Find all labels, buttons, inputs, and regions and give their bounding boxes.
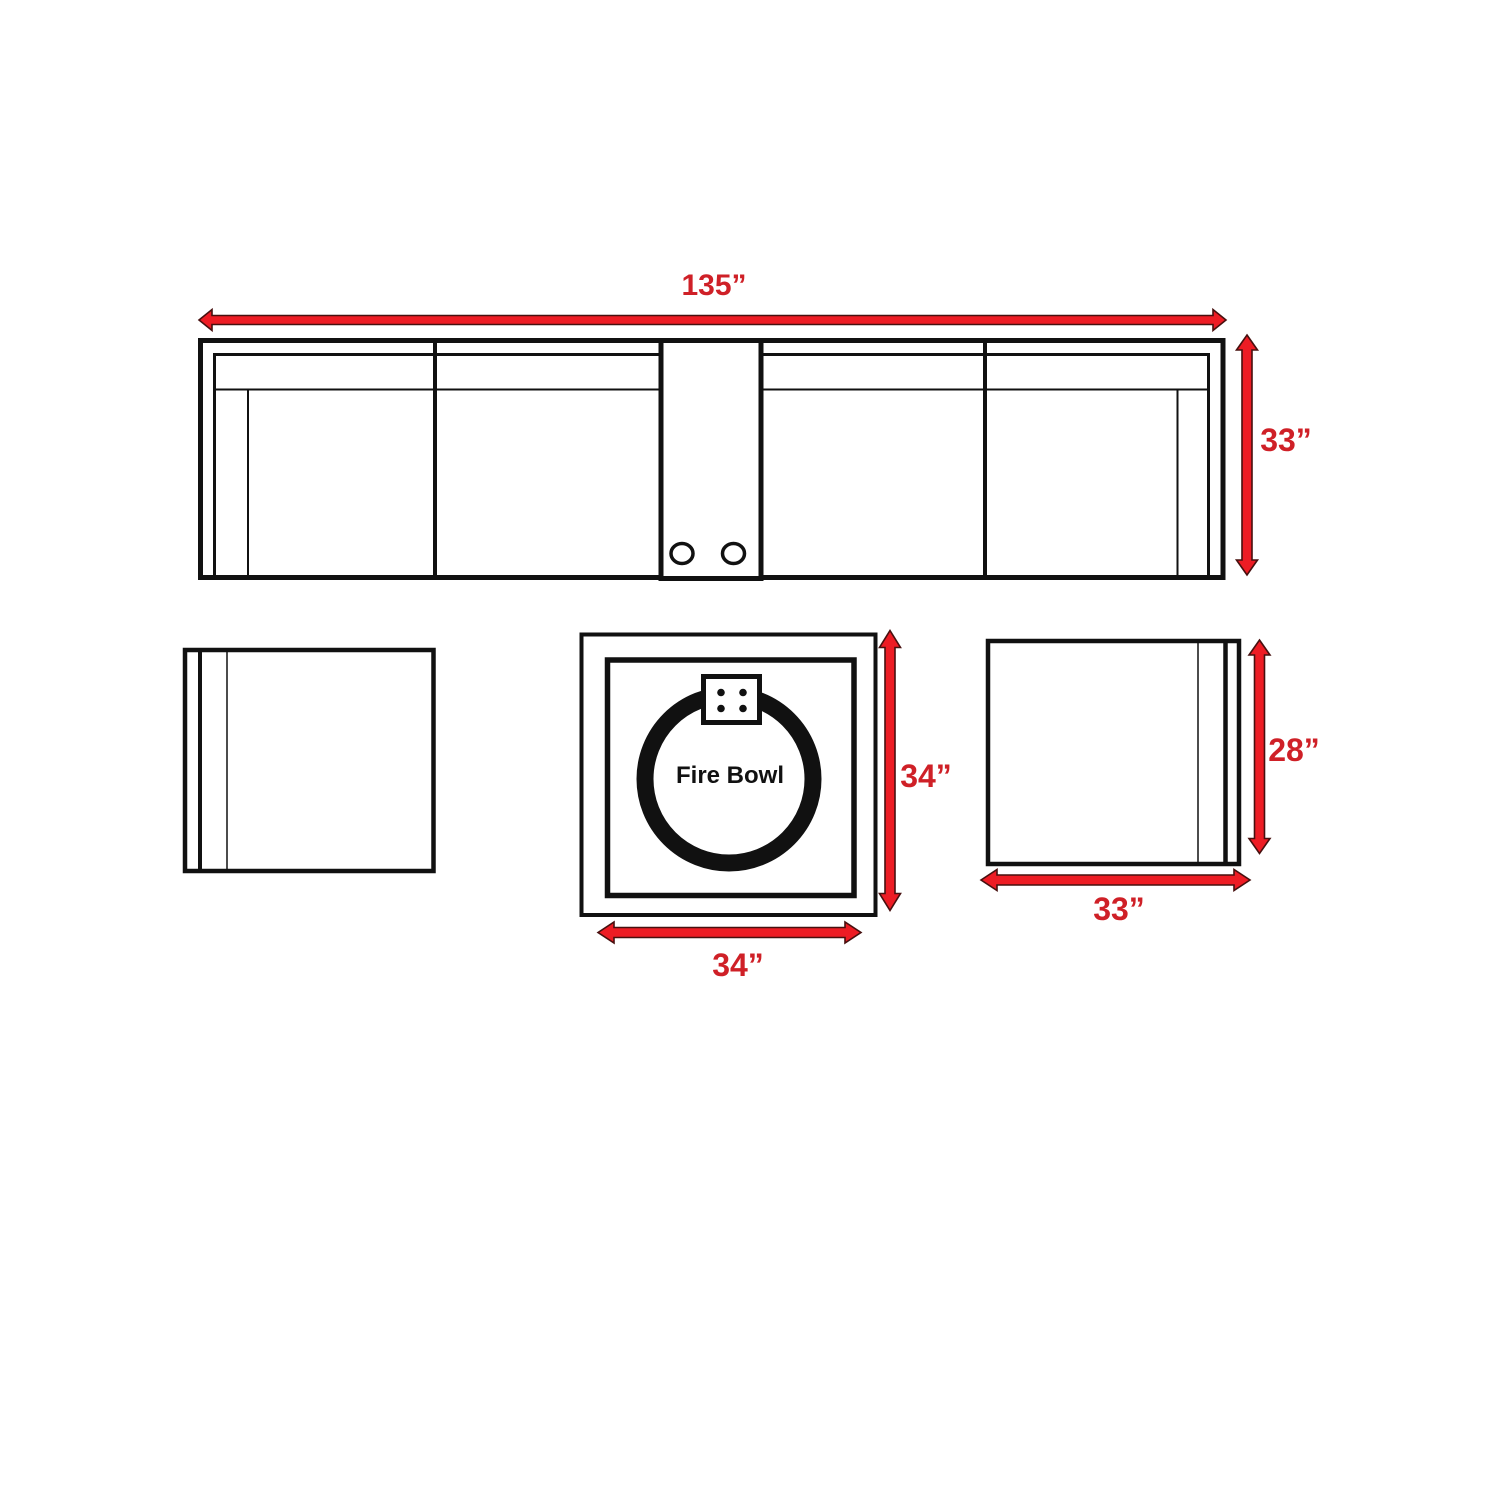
svg-text:34”: 34” <box>712 947 764 983</box>
svg-text:Fire Bowl: Fire Bowl <box>676 762 784 789</box>
svg-text:34”: 34” <box>900 758 952 794</box>
svg-text:33”: 33” <box>1260 422 1312 458</box>
svg-text:135”: 135” <box>681 269 746 302</box>
svg-text:33”: 33” <box>1093 891 1145 927</box>
svg-text:28”: 28” <box>1268 732 1320 768</box>
